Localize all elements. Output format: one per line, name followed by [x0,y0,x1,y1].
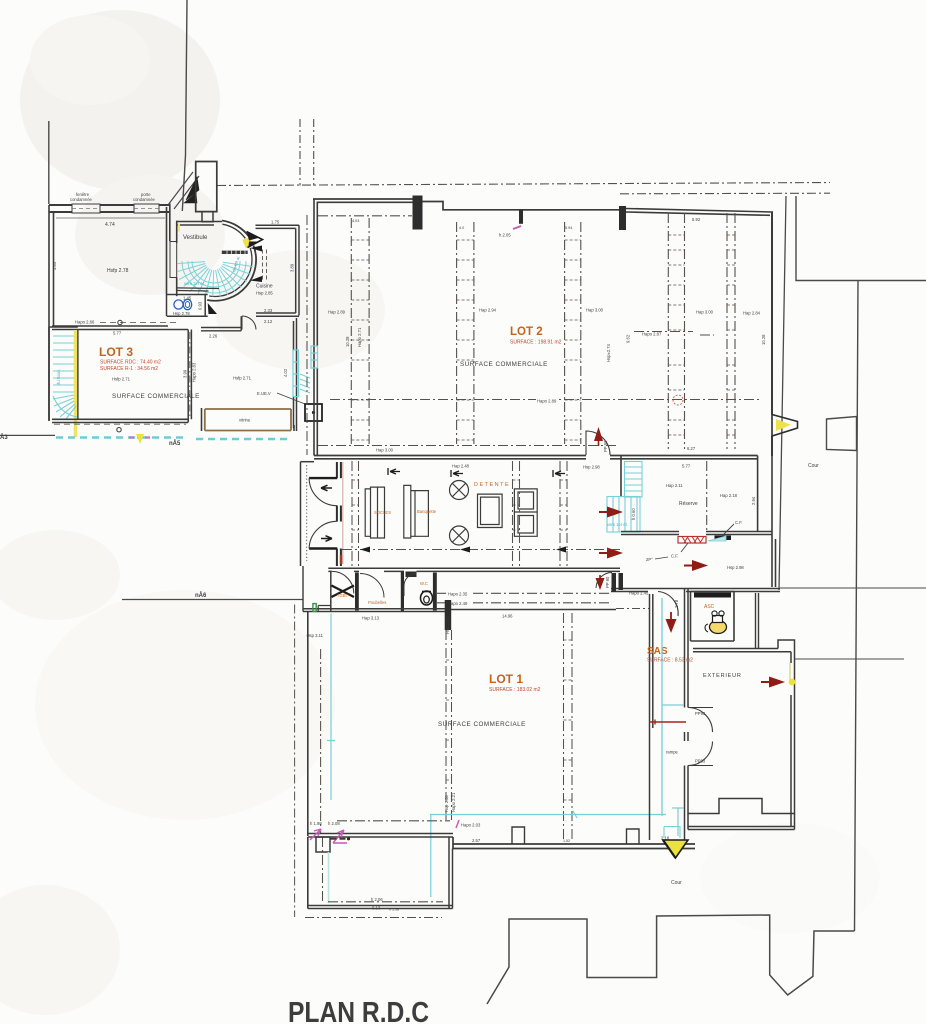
svg-text:nÅ5: nÅ5 [169,440,181,447]
svg-text:condamnée: condamnée [133,197,156,202]
svg-text:Hsfp 2.78: Hsfp 2.78 [107,268,129,274]
svg-text:10.28: 10.28 [761,334,766,345]
svg-text:Hapo 2.83: Hapo 2.83 [192,362,197,382]
svg-text:vers 1er ét.: vers 1er ét. [184,281,205,286]
svg-text:EXTERIEUR: EXTERIEUR [703,673,742,679]
svg-text:5.77: 5.77 [682,464,691,469]
svg-text:Hap 3.13: Hap 3.13 [362,616,380,621]
svg-text:9.62: 9.62 [626,334,631,343]
svg-text:rampe: rampe [666,750,679,755]
svg-text:6.13: 6.13 [372,906,381,911]
svg-text:Banquette: Banquette [417,509,437,514]
svg-text:2.94: 2.94 [751,496,756,505]
svg-text:3.99: 3.99 [183,369,188,378]
svg-text:h.2.05: h.2.05 [499,233,511,238]
svg-text:5.77: 5.77 [113,331,122,336]
svg-text:Hsfp 2.71: Hsfp 2.71 [112,377,131,382]
svg-text:Hsp 3.11: Hsp 3.11 [307,633,324,638]
svg-text:LOT 2: LOT 2 [510,326,543,338]
svg-text:Hap 3.00: Hap 3.00 [696,310,714,315]
svg-text:Hap 2.94: Hap 2.94 [479,308,497,313]
svg-text:1.75: 1.75 [271,220,280,225]
svg-text:h 0.60: h 0.60 [631,508,636,520]
svg-text:SURFACE : 183.02 m2: SURFACE : 183.02 m2 [489,687,541,693]
svg-text:PP 90: PP 90 [605,576,610,588]
svg-text:Hsp 2.34: Hsp 2.34 [444,795,449,812]
svg-text:2.12: 2.12 [264,319,273,324]
svg-text:E.UE.V: E.UE.V [257,391,271,396]
svg-text:14.96: 14.96 [502,614,513,619]
svg-text:vers 1er ét.: vers 1er ét. [607,522,628,527]
svg-text:2P°: 2P° [646,557,653,562]
svg-text:h 1.98: h 1.98 [310,821,322,826]
svg-text:Cuisine: Cuisine [256,284,273,290]
svg-text:h 2.06: h 2.06 [371,897,383,902]
svg-text:Hsp 2.98: Hsp 2.98 [583,465,600,470]
svg-text:5.92: 5.92 [692,217,701,222]
svg-text:SAS: SAS [647,646,668,657]
svg-text:Poubelles: Poubelles [368,600,386,605]
svg-text:PLAN R.D.C: PLAN R.D.C [288,997,429,1024]
svg-text:SURFACE COMMERCIALE: SURFACE COMMERCIALE [438,721,526,728]
svg-text:ASC: ASC [704,604,715,610]
svg-text:Hapo 2.66: Hapo 2.66 [75,320,95,325]
svg-text:Vestibule: Vestibule [183,235,208,241]
svg-text:SURFACE COMMERCIALE: SURFACE COMMERCIALE [112,393,200,400]
svg-text:Hap 2.48: Hap 2.48 [452,464,470,469]
svg-text:Hsp 2.85: Hsp 2.85 [256,291,273,296]
svg-text:2.33: 2.33 [264,308,273,313]
svg-text:0.93: 0.93 [198,301,203,310]
svg-text:Hap 2.89: Hap 2.89 [328,310,346,315]
svg-text:4.74: 4.74 [105,222,115,228]
svg-text:Hap 3.00: Hap 3.00 [376,448,394,453]
svg-text:LOT 3: LOT 3 [99,345,133,359]
svg-text:Hapo 2.89: Hapo 2.89 [537,399,557,404]
svg-text:6.27: 6.27 [687,446,696,451]
svg-text:W.C: W.C [420,581,428,586]
svg-text:SURFACE RDC : 74.40 m2: SURFACE RDC : 74.40 m2 [100,360,161,366]
svg-text:Hapo 2.35: Hapo 2.35 [448,592,468,597]
svg-text:DETENTE: DETENTE [474,482,510,488]
svg-text:PP93: PP93 [695,759,706,764]
svg-text:Hsp 3.00: Hsp 3.00 [445,617,450,634]
svg-text:Cour: Cour [671,880,682,886]
svg-text:Hap 2.11: Hap 2.11 [666,483,683,488]
svg-text:Hapo 2.87: Hapo 2.87 [642,332,662,337]
svg-text:2.78: 2.78 [674,599,679,608]
svg-text:SURFACE : 198.91 m2: SURFACE : 198.91 m2 [510,340,562,346]
svg-text:C.F.: C.F. [671,554,678,559]
svg-text:Hsp 2.98: Hsp 2.98 [727,565,744,570]
svg-text:vitrine: vitrine [239,418,251,423]
svg-text:SURFACE : 8.53 m2: SURFACE : 8.53 m2 [647,658,693,664]
svg-text:3.85: 3.85 [52,261,57,270]
svg-text:Hsp±2.74: Hsp±2.74 [606,343,611,362]
svg-text:LOT 1: LOT 1 [489,672,523,686]
svg-text:Hap 3.00: Hap 3.00 [586,308,604,313]
svg-text:Hapo 2.71: Hapo 2.71 [357,327,362,347]
svg-text:du Sous: du Sous [56,370,61,385]
svg-text:condamnée: condamnée [70,197,93,202]
svg-text:10.28: 10.28 [345,336,350,347]
svg-text:h 2.08: h 2.08 [328,821,340,826]
svg-text:Hsp 2.78: Hsp 2.78 [173,311,190,316]
svg-text:Hapo 2.03: Hapo 2.03 [461,823,481,828]
svg-text:C.F.: C.F. [735,520,742,525]
svg-text:Réserve: Réserve [679,501,698,507]
svg-text:2.57: 2.57 [472,838,481,843]
svg-text:PP93: PP93 [695,711,706,716]
svg-text:SURFACE R-1 : 34.56 m2: SURFACE R-1 : 34.56 m2 [100,366,158,372]
svg-text:SOCLES: SOCLES [374,510,391,515]
svg-text:nÅ6: nÅ6 [195,592,207,599]
svg-text:Hsfp 2.71: Hsfp 2.71 [233,376,252,381]
svg-text:TGBT: TGBT [337,593,349,598]
svg-text:3.89: 3.89 [290,263,295,272]
svg-text:4.03: 4.03 [352,219,359,223]
svg-text:Hap 2.84: Hap 2.84 [743,311,761,316]
svg-text:Cour: Cour [808,463,819,469]
svg-text:Hapo 2.21: Hapo 2.21 [451,792,456,812]
svg-text:2.26: 2.26 [209,334,218,339]
svg-text:5.94: 5.94 [565,226,572,230]
svg-text:4.02: 4.02 [283,368,288,377]
svg-text:h 1.98: h 1.98 [389,908,399,912]
svg-text:Hap 2.18: Hap 2.18 [720,493,738,498]
svg-text:4.0: 4.0 [459,226,464,230]
svg-text:Å3: Å3 [0,434,8,441]
svg-text:Hapo 2.45: Hapo 2.45 [629,591,649,596]
svg-text:1.52: 1.52 [563,839,570,843]
svg-text:SURFACE COMMERCIALE: SURFACE COMMERCIALE [460,361,548,368]
